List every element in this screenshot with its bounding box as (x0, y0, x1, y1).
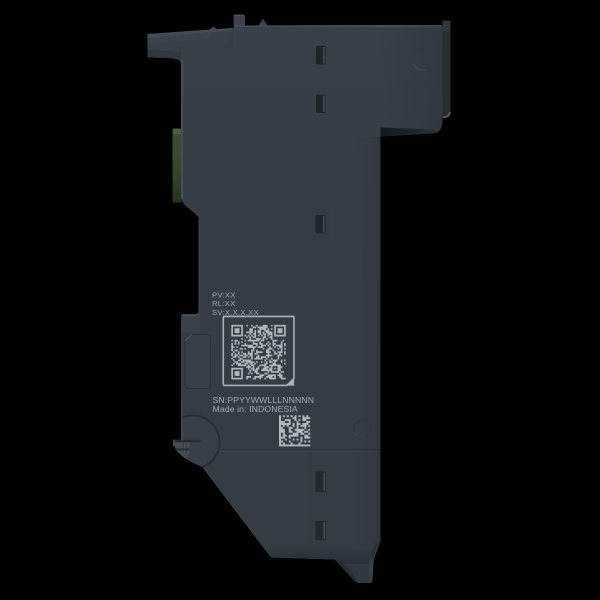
svg-text:SV:X.X.X.XX: SV:X.X.X.XX (212, 308, 259, 317)
svg-text:RL:XX: RL:XX (212, 299, 235, 308)
svg-text:Made in: INDONESIA: Made in: INDONESIA (213, 404, 298, 414)
